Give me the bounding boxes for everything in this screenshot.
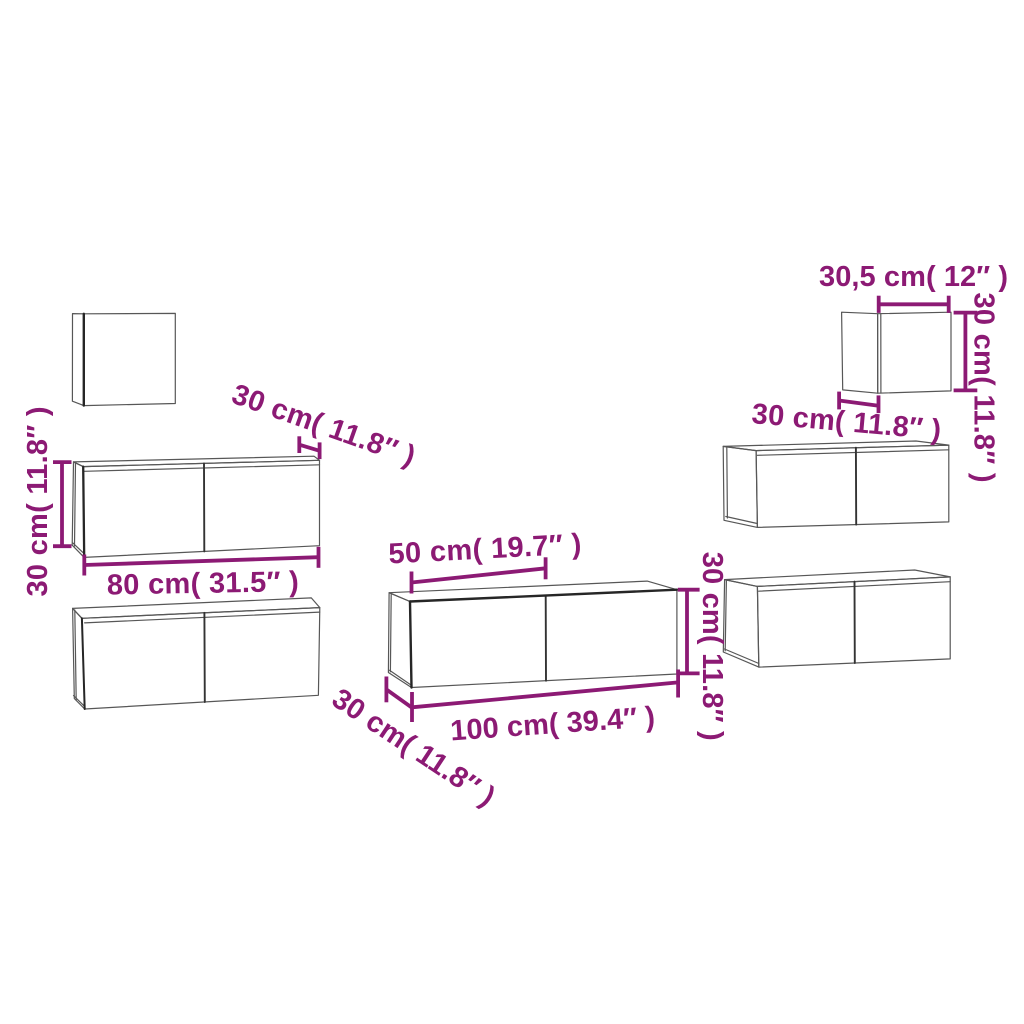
svg-text:30 cm( 11.8″ ): 30 cm( 11.8″ )	[696, 552, 728, 741]
svg-text:30,5 cm( 12″ ): 30,5 cm( 12″ )	[819, 261, 1008, 293]
svg-text:30 cm( 11.8″ ): 30 cm( 11.8″ )	[22, 407, 54, 597]
svg-text:80 cm( 31.5″ ): 80 cm( 31.5″ )	[107, 566, 300, 601]
svg-text:30 cm( 11.8″ ): 30 cm( 11.8″ )	[968, 293, 1000, 483]
